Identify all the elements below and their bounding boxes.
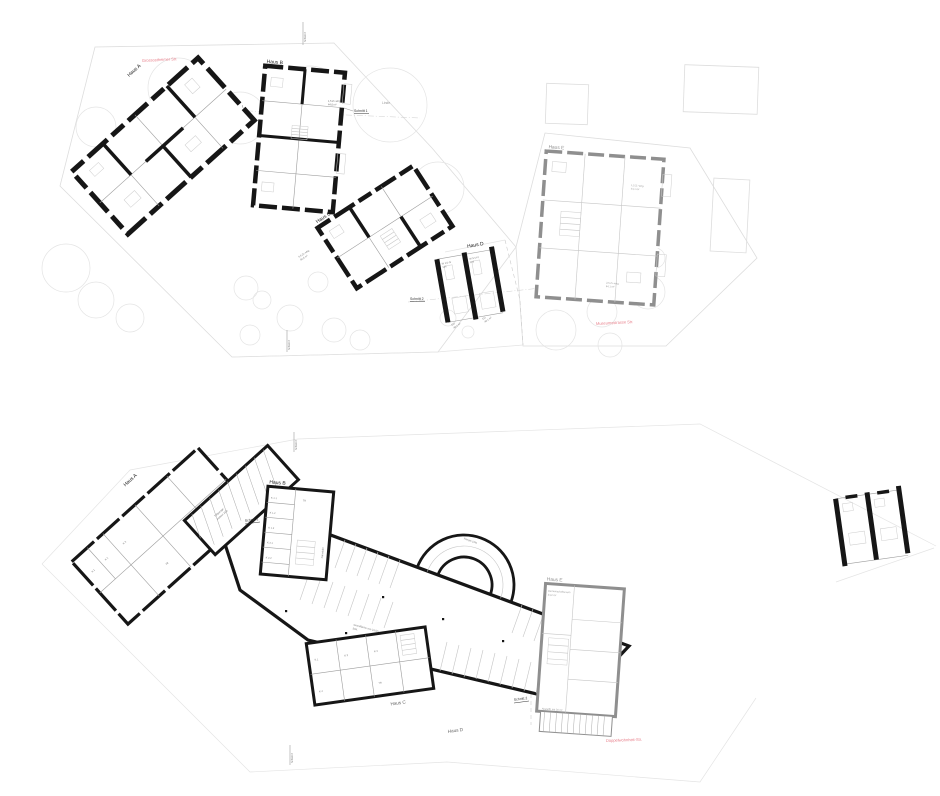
lower-schnitt2: Schnitt 2 xyxy=(514,696,528,702)
upper-plan-ground-floor: Linde Schnitt 1 Schnitt 1 Schnitt 2 Schn… xyxy=(42,22,759,357)
haus-d-plan: Haus D W 1/1-IV 124 W 1/1-IV 124 xyxy=(435,240,503,325)
b-room-k22: K 2.2 xyxy=(266,556,273,560)
schnitt2-label: Schnitt 2 xyxy=(410,297,424,301)
street-label-nw: Grossostheimer Str. xyxy=(142,56,178,63)
street-label-se-lower: Doppelwohnheit-Str. xyxy=(606,737,642,743)
haus-c-basement: K 1 K 2 K 3 K 4 TR Haus C xyxy=(306,627,435,717)
haus-b-plan: Haus B xyxy=(253,59,353,213)
lower-haus-e-label: Haus E xyxy=(547,577,563,584)
b-room-k21: K 2.1 xyxy=(267,541,274,545)
b-room-k13: K 1.3 xyxy=(268,526,275,530)
flat-e1-line2: 44,1 m² xyxy=(631,188,640,192)
street-label-se-upper: Museumsstrasse Str. xyxy=(596,319,634,326)
lower-section-3-top: Schnitt 3 xyxy=(294,432,298,452)
plan-drawing: Linde Schnitt 1 Schnitt 1 Schnitt 2 Schn… xyxy=(0,0,940,796)
section-3-top-marker: Schnitt 3 xyxy=(303,22,307,45)
b-room-k12: K 1.2 xyxy=(270,512,277,516)
c-room-tr: TR xyxy=(378,682,382,685)
site-plan-sheet: Linde Schnitt 1 Schnitt 1 Schnitt 2 Schn… xyxy=(0,0,940,796)
b-room-k11: K 1.1 xyxy=(271,497,278,501)
linde-label: Linde xyxy=(382,101,390,105)
lower-section-3-bottom: Schnitt 3 xyxy=(290,745,294,765)
haus-e-plan: Haus E 1,5 Zi.-whg. 44,1 m² 2,5 Zi.-whg.… xyxy=(536,144,673,305)
flat-e2-line2: 64,1 m² xyxy=(606,285,615,289)
lower-haus-d-label: Haus D xyxy=(447,727,464,734)
haus-a-label: Haus A xyxy=(126,63,142,79)
haus-d-label: Haus D xyxy=(467,241,485,250)
lower-plan-basement: Schnitt 3 Schnitt 3 xyxy=(42,424,936,782)
lower-schnitt3-top: Schnitt 3 xyxy=(295,440,298,450)
ramp-label: Rampe 10% xyxy=(463,537,478,545)
schnitt3-top-label: Schnitt 3 xyxy=(304,32,307,42)
section-3-bottom-marker: Schnitt 3 xyxy=(287,330,291,352)
haus-e-basement: Gemeinschaftsraum 34,2 m² Abstellfl. mit… xyxy=(535,576,625,736)
b-room-tr: TR xyxy=(303,499,307,502)
flat-b-line2: 44,6 m² xyxy=(328,104,337,107)
schnitt3-bottom-label: Schnitt 3 xyxy=(288,340,291,350)
lower-haus-a-label: Haus A xyxy=(123,472,139,488)
e-room-line2: 34,2 m² xyxy=(548,594,557,598)
haus-e-label: Haus E xyxy=(548,144,564,151)
lower-schnitt3-bottom: Schnitt 3 xyxy=(291,753,294,763)
lower-haus-c-label: Haus C xyxy=(390,699,407,706)
haus-b-basement: K 1.1 K 1.2 K 1.3 K 2.1 K 2.2 TR Fahrräd… xyxy=(260,479,334,579)
schnitt1-right-label: Schnitt 1 xyxy=(354,109,368,113)
